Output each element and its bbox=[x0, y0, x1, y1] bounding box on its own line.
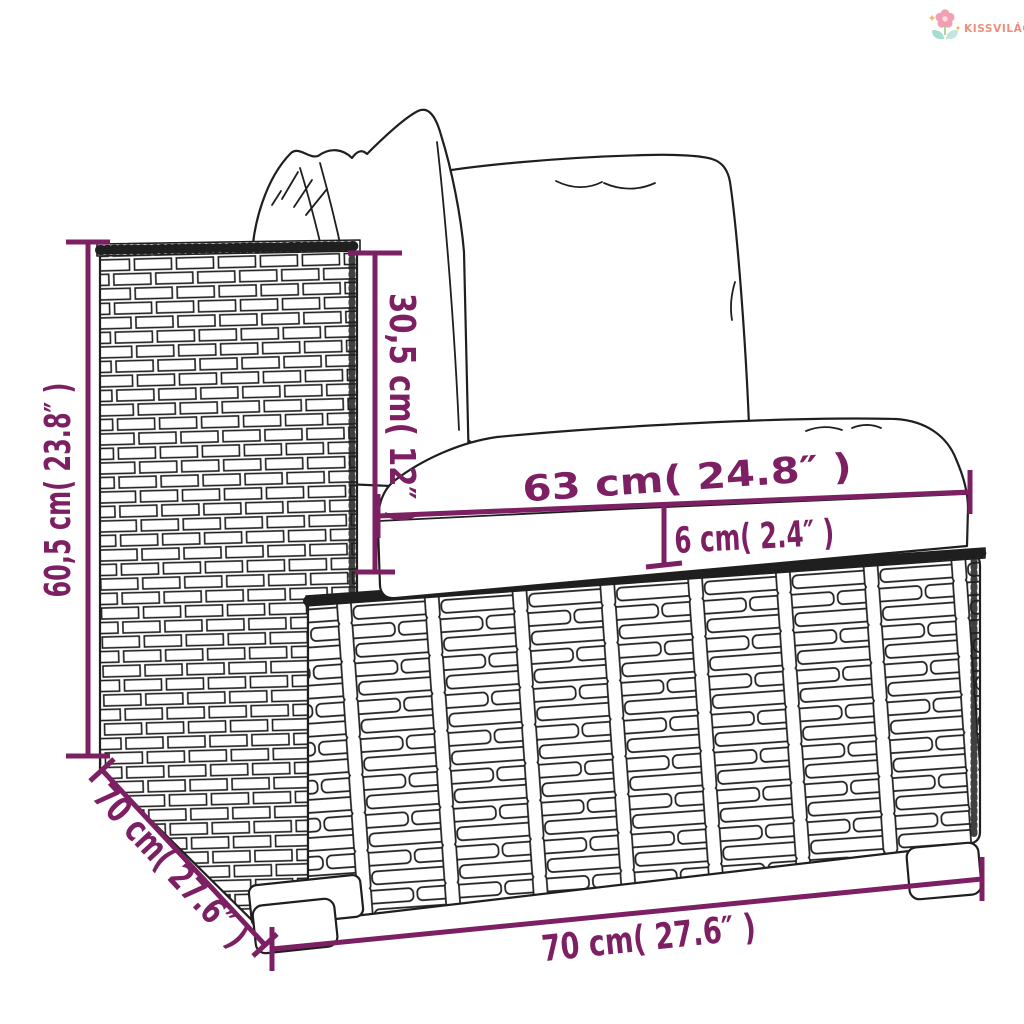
sofa-diagram-svg: 60,5 cm( 23.8″ ) 30,5 cm( 12″ ) 63 cm( 2… bbox=[0, 0, 1024, 1024]
product-dimension-diagram: 60,5 cm( 23.8″ ) 30,5 cm( 12″ ) 63 cm( 2… bbox=[0, 0, 1024, 1024]
cushion-thickness-label: 6 cm( 2.4″ ) bbox=[673, 513, 835, 562]
sparkle-icon bbox=[955, 25, 960, 30]
brand-logo: KISSVILÁG bbox=[929, 9, 1024, 39]
flower-icon bbox=[929, 9, 961, 39]
seat-base-weave bbox=[306, 548, 985, 920]
backrest-height-label: 30,5 cm( 12″ ) bbox=[381, 293, 422, 523]
overall-height-label: 60,5 cm( 23.8″ ) bbox=[38, 383, 79, 598]
brand-name: KISSVILÁG bbox=[964, 22, 1024, 35]
leaf-shape bbox=[946, 30, 958, 39]
leaf-shape bbox=[932, 30, 944, 39]
sparkle-icon bbox=[929, 15, 935, 21]
right-foot bbox=[906, 842, 982, 900]
sofa-sketch bbox=[97, 110, 985, 954]
width-label: 70 cm( 27.6″ ) bbox=[540, 907, 758, 970]
